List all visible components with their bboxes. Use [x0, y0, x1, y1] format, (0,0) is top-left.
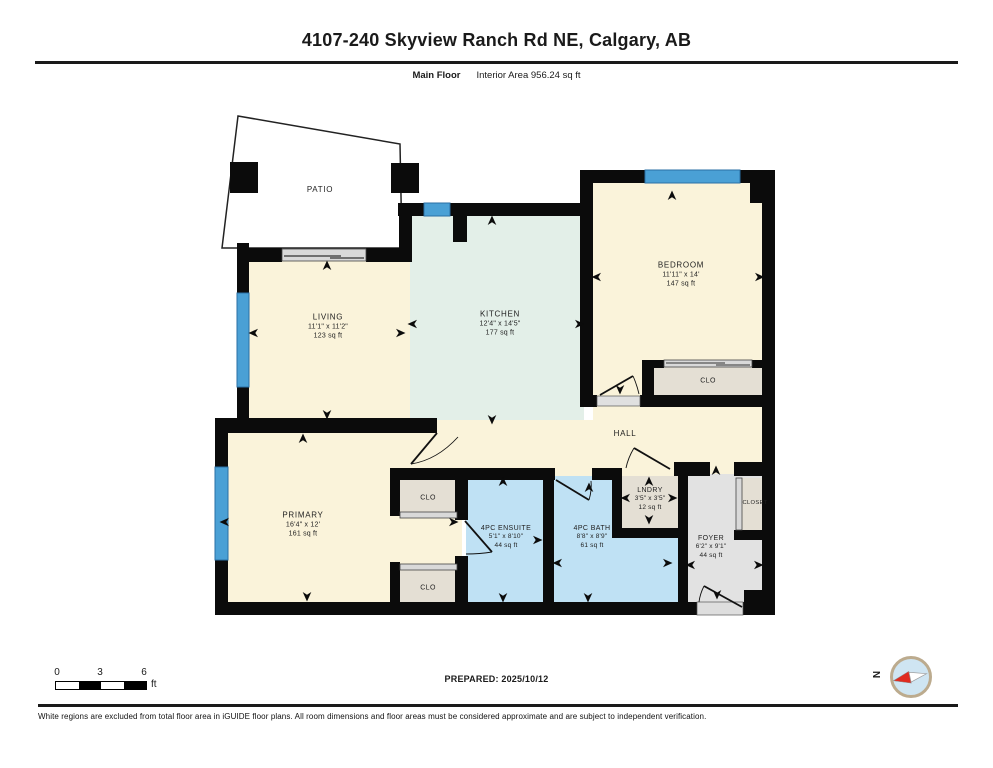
- room-name: BEDROOM: [658, 261, 704, 271]
- floorplan-svg: [0, 0, 993, 768]
- room-area: 12 sq ft: [635, 504, 666, 512]
- room-name: CLO: [420, 493, 436, 502]
- primary-closet-sliding-door: [400, 512, 457, 518]
- room-name: CLO: [420, 583, 436, 592]
- room-label-living: LIVING 11'1" x 11'2" 123 sq ft: [308, 313, 348, 342]
- patio-outline: [222, 116, 419, 248]
- room-area: 177 sq ft: [480, 329, 521, 338]
- room-label-bedroom: BEDROOM 11'11" x 14' 147 sq ft: [658, 261, 704, 290]
- room-dims: 6'2" x 9'1": [696, 543, 727, 551]
- window: [215, 467, 228, 560]
- room-dims: 5'1" x 8'10": [481, 533, 531, 541]
- room-area: 61 sq ft: [574, 542, 611, 550]
- room-area: 161 sq ft: [282, 530, 323, 539]
- room-label-foyer-closet: CLOSET: [743, 500, 768, 508]
- room-dims: 12'4" x 14'5": [480, 320, 521, 329]
- room-label-foyer: FOYER 6'2" x 9'1" 44 sq ft: [696, 534, 727, 560]
- room-dims: 3'5" x 3'5": [635, 495, 666, 503]
- bedroom-door-threshold: [597, 396, 640, 406]
- room-area: 44 sq ft: [696, 552, 727, 560]
- room-label-ensuite: 4PC ENSUITE 5'1" x 8'10" 44 sq ft: [481, 524, 531, 550]
- floorplan-page: { "header": { "title": "4107-240 Skyview…: [0, 0, 993, 768]
- room-label-primary: PRIMARY 16'4" x 12' 161 sq ft: [282, 511, 323, 540]
- window: [424, 203, 450, 216]
- room-name: PATIO: [307, 185, 333, 195]
- room-name: LIVING: [308, 313, 348, 323]
- window: [645, 170, 740, 183]
- room-name: PRIMARY: [282, 511, 323, 521]
- room-name: KITCHEN: [480, 310, 521, 320]
- room-label-hall: HALL: [614, 429, 637, 439]
- room-name: LNDRY: [635, 486, 666, 495]
- room-area: 44 sq ft: [481, 542, 531, 550]
- room-dims: 16'4" x 12': [282, 521, 323, 530]
- room-label-primary-closet-1: CLO: [420, 493, 436, 502]
- patio-column: [230, 162, 258, 193]
- room-label-bedroom-closet: CLO: [700, 376, 716, 385]
- room-dims: 11'1" x 11'2": [308, 323, 348, 332]
- prepared-date-label: PREPARED: 2025/10/12: [0, 674, 993, 684]
- room-label-laundry: LNDRY 3'5" x 3'5" 12 sq ft: [635, 486, 666, 512]
- room-name: HALL: [614, 429, 637, 439]
- room-label-bath: 4PC BATH 8'8" x 8'9" 61 sq ft: [574, 524, 611, 550]
- room-dims: 8'8" x 8'9": [574, 533, 611, 541]
- room-label-kitchen: KITCHEN 12'4" x 14'5" 177 sq ft: [480, 310, 521, 339]
- room-label-patio: PATIO: [307, 185, 333, 195]
- north-label: N: [872, 671, 883, 678]
- room-name: 4PC BATH: [574, 524, 611, 533]
- room-name: FOYER: [696, 534, 727, 543]
- room-dims: 11'11" x 14': [658, 271, 704, 280]
- primary-closet-sliding-door: [400, 564, 457, 570]
- room-area: 123 sq ft: [308, 332, 348, 341]
- room-label-primary-closet-2: CLO: [420, 583, 436, 592]
- patio-sliding-door: [282, 249, 366, 261]
- patio-column: [391, 163, 419, 193]
- footer-divider: [38, 704, 958, 707]
- room-name: CLOSET: [743, 500, 768, 508]
- room-name: 4PC ENSUITE: [481, 524, 531, 533]
- room-area: 147 sq ft: [658, 280, 704, 289]
- disclaimer-text: White regions are excluded from total fl…: [38, 712, 706, 721]
- window: [237, 293, 249, 387]
- room-name: CLO: [700, 376, 716, 385]
- foyer-closet-sliding-door: [736, 478, 742, 530]
